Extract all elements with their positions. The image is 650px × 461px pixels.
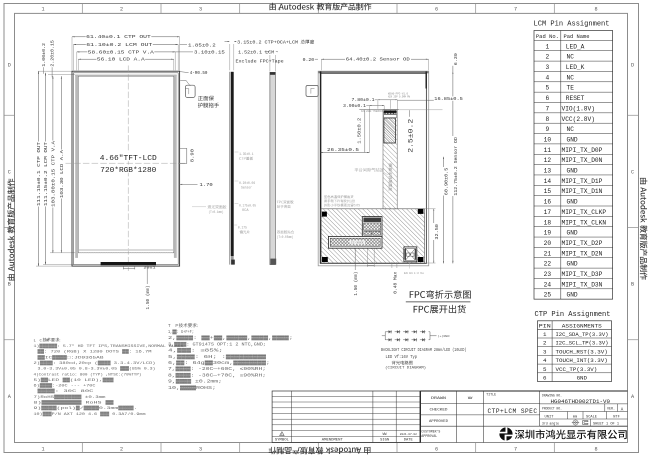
svg-text:56.10 LCD A.A: 56.10 LCD A.A — [97, 58, 145, 63]
svg-text:GND: GND — [567, 168, 578, 175]
svg-text:0.20: 0.20 — [303, 59, 315, 63]
svg-text:7: 7 — [514, 7, 517, 13]
svg-text:LCM Pin Assignment: LCM Pin Assignment — [534, 21, 610, 29]
svg-text:1.00±0.2: 1.00±0.2 — [43, 43, 47, 67]
svg-text:10: 10 — [544, 136, 552, 143]
svg-text:CHECKED: CHECKED — [430, 409, 448, 413]
svg-text:Pad Name: Pad Name — [564, 33, 590, 40]
svg-text:20: 20 — [544, 240, 552, 247]
svg-text:2: 2 — [120, 447, 123, 453]
svg-text:19: 19 — [544, 230, 552, 237]
svg-text:NC: NC — [567, 74, 575, 81]
svg-text:6: 6 — [546, 95, 550, 102]
svg-text:MIPI_TX_D1P: MIPI_TX_D1P — [562, 178, 603, 185]
svg-text:8: 8 — [594, 7, 597, 13]
svg-text:3: 3 — [546, 64, 550, 71]
svg-text:61.40±0.1 CTP OUT: 61.40±0.1 CTP OUT — [86, 35, 151, 40]
svg-text:DATE: DATE — [404, 438, 413, 442]
svg-text:SCALE: SCALE — [586, 414, 597, 418]
svg-text:1.50 (mm): 1.50 (mm) — [354, 272, 359, 296]
svg-text:MIPI_TX_CLKP: MIPI_TX_CLKP — [562, 209, 607, 216]
svg-text:mm: mm — [573, 415, 577, 419]
svg-text:NC: NC — [567, 54, 575, 61]
svg-text:LED_K: LED_K — [566, 64, 585, 71]
svg-text:MIPI_TX_D2P: MIPI_TX_D2P — [562, 240, 603, 247]
svg-text:CUSTOMER'S: CUSTOMER'S — [421, 429, 440, 433]
svg-text:1.52±0.1 LCM: 1.52±0.1 LCM — [238, 51, 274, 56]
svg-text:7: 7 — [546, 105, 550, 112]
svg-text:LED Vf:16V Typ: LED Vf:16V Typ — [386, 355, 418, 360]
svg-text:0.20±0.06: 0.20±0.06 — [239, 182, 255, 186]
svg-text:58.60±0.15 CTP V.A: 58.60±0.15 CTP V.A — [88, 50, 154, 55]
svg-text:1: 1 — [543, 331, 547, 338]
svg-text:103.30 LCD A.A: 103.30 LCD A.A — [60, 150, 65, 198]
svg-text:Exclude FPC+Tape: Exclude FPC+Tape — [236, 59, 285, 64]
svg-text:4: 4 — [543, 357, 547, 364]
svg-text:HG046THD002TD1-V0: HG046THD002TD1-V0 — [551, 399, 611, 405]
svg-text:6: 6 — [435, 7, 438, 13]
svg-text:GND: GND — [567, 136, 578, 143]
svg-text:17: 17 — [544, 209, 552, 216]
svg-text:7: 7 — [514, 447, 517, 453]
svg-text:DRAWING NO.: DRAWING NO. — [542, 394, 562, 398]
svg-text:1.50±0.2: 1.50±0.2 — [359, 117, 363, 144]
svg-text:3rd angle: 3rd angle — [542, 422, 559, 427]
svg-text:C: C — [8, 169, 11, 175]
svg-text:2: 2 — [543, 340, 547, 347]
svg-text:720*RGB*1280: 720*RGB*1280 — [100, 167, 156, 175]
svg-text:MIPI_TX_D3N: MIPI_TX_D3N — [562, 281, 603, 288]
svg-text:VIO(1.8V): VIO(1.8V) — [562, 105, 595, 112]
svg-text:VER.: VER. — [607, 407, 615, 411]
svg-text:1.70: 1.70 — [200, 183, 214, 188]
svg-text:4-R0.50: 4-R0.50 — [190, 72, 208, 76]
svg-text:PIN: PIN — [539, 322, 551, 329]
svg-text:15: 15 — [544, 188, 552, 195]
svg-text:1.50 (mm): 1.50 (mm) — [146, 286, 151, 310]
svg-text:B: B — [631, 282, 634, 288]
svg-text:UNIT: UNIT — [545, 414, 554, 418]
svg-text:F2L 20B0 YYWWXXXX: F2L 20B0 YYWWXXXX — [361, 110, 383, 113]
svg-text:APPROVAL: APPROVAL — [421, 434, 437, 438]
svg-text:13: 13 — [544, 168, 552, 175]
svg-text:LED_A: LED_A — [566, 43, 585, 50]
svg-text:23: 23 — [544, 271, 552, 278]
svg-text:3: 3 — [543, 348, 547, 355]
svg-text:1.35±0.1: 1.35±0.1 — [239, 153, 254, 157]
svg-text:2: 2 — [120, 7, 123, 13]
svg-text:B: B — [8, 282, 11, 288]
svg-text:GND: GND — [567, 199, 578, 206]
svg-text:4)Contrast ratio: 800 (TYP) ,N: 4)Contrast ratio: 800 (TYP) ,NTSC:(70%TY… — [34, 372, 142, 377]
svg-text:NC: NC — [567, 126, 575, 133]
svg-text:C: C — [631, 169, 634, 175]
svg-text:(T=0.05mm): (T=0.05mm) — [277, 235, 294, 239]
svg-text:21: 21 — [544, 250, 552, 257]
svg-text:4.66″TFT-LCD: 4.66″TFT-LCD — [100, 155, 158, 163]
svg-text:I2C_SDA_TP(3.3V): I2C_SDA_TP(3.3V) — [556, 331, 609, 338]
svg-text:3.90±0.1: 3.90±0.1 — [343, 105, 367, 109]
svg-text:111.15±0.1 CTP OUT: 111.15±0.1 CTP OUT — [37, 142, 42, 206]
svg-text:25: 25 — [544, 292, 552, 299]
svg-text:8: 8 — [546, 116, 550, 123]
svg-text:2021.07.02: 2021.07.02 — [400, 433, 417, 436]
svg-text:8: 8 — [594, 447, 597, 453]
svg-text:2.5±0.2: 2.5±0.2 — [408, 118, 415, 152]
svg-text:7.80±0.1: 7.80±0.1 — [352, 99, 376, 103]
svg-text:5: 5 — [543, 366, 547, 373]
svg-text:60.90±0.5: 60.90±0.5 — [445, 167, 449, 195]
svg-text:64.40±0.2 Sensor OD: 64.40±0.2 Sensor OD — [346, 58, 410, 63]
svg-text:9: 9 — [546, 126, 550, 133]
svg-text:0.48 Max: 0.48 Max — [395, 271, 399, 294]
svg-text:BACKLIGHT CIRCUIT DIAGRAM 28m: BACKLIGHT CIRCUIT DIAGRAM 28mA/LED (10LE… — [381, 348, 467, 353]
svg-text:SIGN: SIGN — [380, 438, 389, 442]
svg-text:2: 2 — [546, 54, 550, 61]
svg-text:1.85±0.2: 1.85±0.2 — [188, 43, 216, 48]
svg-text:6.30: 6.30 — [455, 53, 459, 66]
svg-text:4: 4 — [546, 74, 550, 81]
svg-text:14: 14 — [544, 178, 552, 185]
svg-text:TE: TE — [567, 85, 575, 92]
svg-text:8.90: 8.90 — [191, 149, 196, 163]
svg-text:0.175±0.05: 0.175±0.05 — [239, 204, 256, 208]
svg-text:MIPI_TX_D0N: MIPI_TX_D0N — [562, 157, 603, 164]
svg-text:Sensor: Sensor — [241, 186, 252, 191]
svg-text:16: 16 — [544, 199, 552, 206]
svg-text:H2X 25P 0.3MM PW: H2X 25P 0.3MM PW — [388, 95, 410, 98]
svg-text:MIPI_TX_D0P: MIPI_TX_D0P — [562, 147, 603, 154]
svg-text:IC-XXXX: IC-XXXX — [351, 242, 364, 245]
svg-text:WW: WW — [383, 432, 387, 436]
svg-text:0.175: 0.175 — [238, 226, 247, 230]
svg-text:GND: GND — [567, 230, 578, 237]
svg-text:LCM: LCM — [34, 339, 49, 343]
svg-text:1: 1 — [41, 447, 44, 453]
svg-text:MIPI_TX_D3P: MIPI_TX_D3P — [562, 271, 603, 278]
svg-text:DRAWN: DRAWN — [431, 397, 446, 401]
svg-text:26.35±0.5: 26.35±0.5 — [327, 149, 360, 153]
svg-text:5: 5 — [546, 85, 550, 92]
svg-text:I2C_SCL_TP(3.3V): I2C_SCL_TP(3.3V) — [556, 340, 609, 347]
svg-text:SYMBOL: SYMBOL — [275, 438, 289, 442]
svg-text:MIPI_TX_CLKN: MIPI_TX_CLKN — [562, 219, 607, 226]
svg-text:GND: GND — [567, 261, 578, 268]
svg-text:6: 6 — [543, 375, 547, 382]
svg-text:APPROVED: APPROVED — [429, 420, 448, 424]
svg-text:20±1: 20±1 — [144, 267, 157, 271]
svg-text:(T=0.1mm): (T=0.1mm) — [209, 210, 224, 214]
svg-text:16.85±0.5: 16.85±0.5 — [434, 98, 463, 102]
svg-text:111.15±0.2 LCM OUT: 111.15±0.2 LCM OUT — [44, 142, 49, 206]
svg-text:1: 1 — [41, 7, 44, 13]
svg-text:TOUCH_RST(3.3V): TOUCH_RST(3.3V) — [556, 348, 608, 355]
svg-text:(+)RED: (+)RED — [438, 334, 450, 338]
svg-text:RESET: RESET — [566, 95, 585, 102]
svg-text:6: 6 — [435, 447, 438, 453]
svg-text:AMENDMENT: AMENDMENT — [322, 438, 343, 442]
svg-text:32.50: 32.50 — [436, 224, 440, 240]
svg-text:3: 3 — [199, 447, 202, 453]
svg-text:VCC_TP(3.3V): VCC_TP(3.3V) — [556, 366, 598, 373]
svg-text:61.10±0.2 LCM OUT: 61.10±0.2 LCM OUT — [86, 43, 153, 48]
svg-text:1: 1 — [546, 43, 550, 50]
svg-text:CTP+LCM SPEC: CTP+LCM SPEC — [488, 408, 538, 415]
svg-text:103.80±0.15 CTP V.A: 103.80±0.15 CTP V.A — [52, 141, 57, 207]
svg-text:SHEET 1 OF 1: SHEET 1 OF 1 — [593, 423, 619, 427]
svg-text:24: 24 — [544, 281, 552, 288]
svg-text:MIPI_TX_D2N: MIPI_TX_D2N — [562, 250, 603, 257]
svg-text:11: 11 — [544, 147, 552, 154]
svg-text:GND: GND — [567, 292, 578, 299]
svg-text:12: 12 — [544, 157, 552, 164]
svg-text:(CIRCUIT DIAGRAM): (CIRCUIT DIAGRAM) — [385, 366, 426, 371]
svg-text:3.15±0.2 CTP+OCA+LCM: 3.15±0.2 CTP+OCA+LCM — [237, 40, 298, 45]
svg-text:3.10±0.15: 3.10±0.15 — [194, 50, 225, 55]
svg-text:OCA: OCA — [242, 209, 250, 213]
svg-text:3: 3 — [199, 7, 202, 13]
svg-text:22: 22 — [544, 261, 552, 268]
svg-text:18: 18 — [544, 219, 552, 226]
svg-text:TITLE: TITLE — [486, 393, 496, 397]
svg-text:Pad No.: Pad No. — [536, 33, 559, 40]
svg-text:NTF: NTF — [613, 415, 619, 419]
svg-text:D: D — [631, 62, 634, 68]
svg-text:2.20±0.15: 2.20±0.15 — [52, 40, 56, 67]
svg-text:D: D — [8, 62, 11, 68]
svg-text:PRODUCT NO.: PRODUCT NO. — [542, 407, 562, 411]
svg-text:CTP Pin Assignment: CTP Pin Assignment — [535, 311, 611, 319]
svg-text:GND: GND — [577, 375, 588, 382]
svg-text:ASSIGNMENTS: ASSIGNMENTS — [562, 322, 603, 329]
svg-text:112.75±0.2 Sensor OD: 112.75±0.2 Sensor OD — [455, 137, 459, 196]
svg-text:VCC(2.8V): VCC(2.8V) — [562, 116, 595, 123]
svg-text:B2B 4B1 0.1t Max: B2B 4B1 0.1t Max — [404, 272, 424, 275]
svg-text:MIPI_TX_D1N: MIPI_TX_D1N — [562, 188, 603, 195]
svg-text:TOUCH_INT(3.3V): TOUCH_INT(3.3V) — [556, 357, 608, 364]
